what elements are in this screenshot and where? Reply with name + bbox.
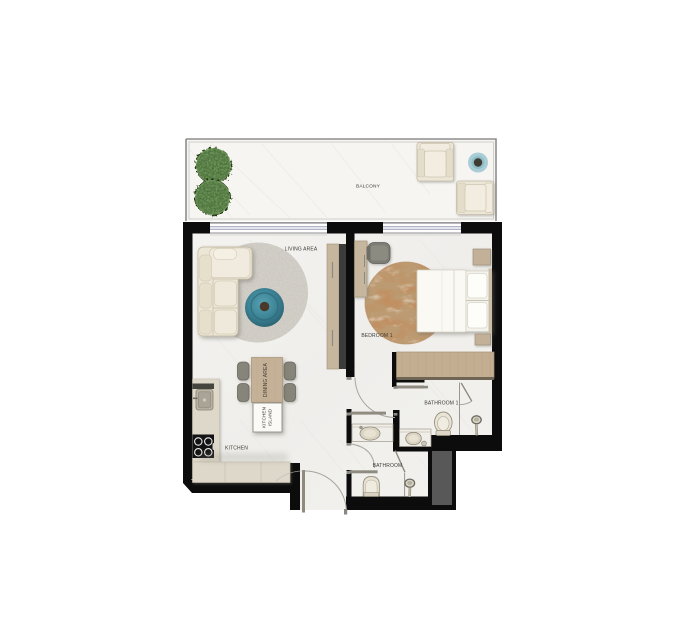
svg-text:BALCONY: BALCONY xyxy=(356,184,381,190)
svg-text:BEDROOM 1: BEDROOM 1 xyxy=(361,333,392,339)
svg-text:KITCHEN: KITCHEN xyxy=(225,446,248,452)
svg-text:LIVING AREA: LIVING AREA xyxy=(285,247,318,253)
svg-text:BATHROOM 1: BATHROOM 1 xyxy=(424,401,458,407)
svg-text:BATHROOM: BATHROOM xyxy=(373,463,403,469)
svg-text:ISLAND: ISLAND xyxy=(268,408,273,426)
svg-text:KITCHEN: KITCHEN xyxy=(262,407,267,428)
svg-text:DINING AREA: DINING AREA xyxy=(263,363,269,397)
